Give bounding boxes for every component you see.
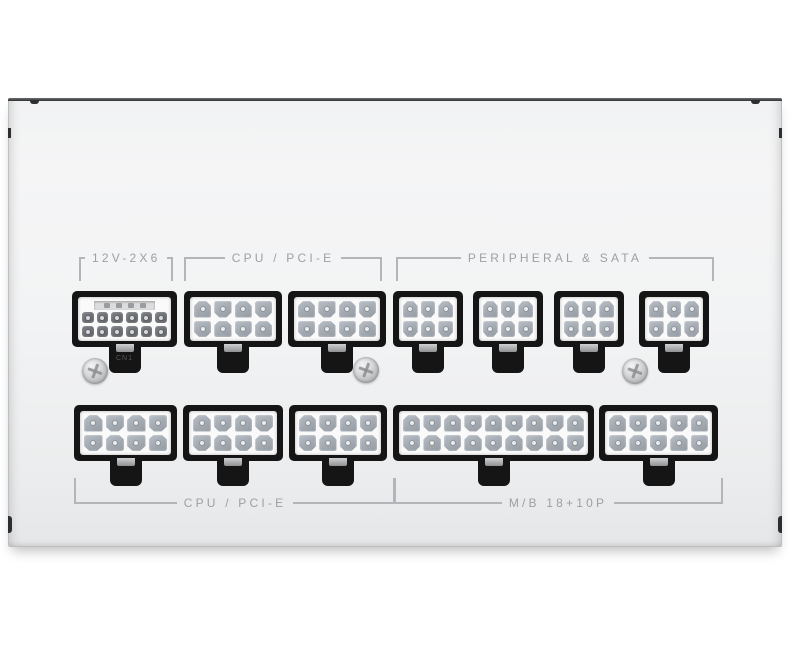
connector-housing	[605, 411, 712, 455]
connector-housing	[189, 411, 277, 455]
pin-cavity	[235, 321, 252, 338]
group-label-text: 12V-2X6	[92, 252, 160, 264]
pin-cavity	[526, 435, 543, 452]
tab-latch	[224, 458, 242, 466]
tab-latch	[665, 344, 683, 352]
sense-pin	[104, 303, 110, 308]
connector-housing	[80, 411, 171, 455]
pin-cavity	[609, 435, 626, 452]
pin-cavity	[667, 301, 682, 318]
pin-cavity	[298, 321, 315, 338]
pin-cavity	[299, 415, 316, 432]
pin-cavity	[340, 435, 357, 452]
connector-cpu-pcie-top-1	[184, 291, 282, 347]
pin-grid	[609, 415, 708, 451]
pin-cavity	[214, 321, 231, 338]
sense-pins	[94, 301, 155, 310]
pin-cavity	[444, 435, 461, 452]
group-label-text: M/B 18+10P	[509, 497, 607, 509]
pin-cavity	[505, 435, 522, 452]
pin-grid	[483, 301, 533, 337]
cable-tab	[478, 458, 510, 486]
pin-cavity	[214, 415, 232, 432]
pin-cavity	[423, 415, 440, 432]
pin-cavity	[193, 415, 211, 432]
pin-cavity	[501, 321, 516, 338]
cable-tab	[412, 344, 444, 373]
pin-cavity	[483, 301, 498, 318]
pin-cavity	[464, 435, 481, 452]
pin-cavity	[582, 301, 597, 318]
pin-cavity	[82, 326, 94, 337]
pin-cavity	[340, 415, 357, 432]
pin-cavity	[318, 321, 335, 338]
pin-cavity	[599, 321, 614, 338]
pin-cavity	[650, 415, 667, 432]
screw	[622, 358, 648, 384]
cable-tab	[217, 458, 249, 486]
cable-tab	[643, 458, 675, 486]
screw	[82, 358, 108, 384]
group-label-text: CPU / PCI-E	[232, 252, 335, 264]
connector-cpu-pcie-bottom-3	[289, 405, 387, 461]
tab-latch	[329, 458, 347, 466]
pin-cavity	[214, 435, 232, 452]
connector-peripheral-sata-1	[393, 291, 463, 347]
pin-cavity	[609, 415, 626, 432]
product-photo: 12V-2X6 CPU / PCI-E PERIPHERAL & SATA CP…	[0, 0, 791, 648]
tab-latch	[419, 344, 437, 352]
tab-latch	[650, 458, 668, 466]
pin-cavity	[649, 301, 664, 318]
cable-tab	[573, 344, 605, 373]
edge-tick-right	[779, 128, 782, 138]
pin-cavity	[82, 312, 94, 323]
pin-cavity	[360, 435, 377, 452]
pin-cavity	[141, 326, 153, 337]
pin-cavity	[423, 435, 440, 452]
pin-cavity	[155, 326, 167, 337]
pin-cavity	[599, 301, 614, 318]
connector-cpu-pcie-top-2	[288, 291, 386, 347]
pin-grid	[403, 415, 584, 451]
group-label-text: CPU / PCI-E	[184, 497, 287, 509]
tab-latch	[328, 344, 346, 352]
pin-cavity	[255, 415, 273, 432]
pin-cavity	[149, 435, 168, 452]
pin-cavity	[235, 301, 252, 318]
pin-cavity	[649, 321, 664, 338]
pin-cavity	[359, 321, 376, 338]
pin-cavity	[299, 435, 316, 452]
connector-housing	[78, 297, 171, 341]
pin-cavity	[298, 301, 315, 318]
pin-cavity	[464, 415, 481, 432]
pin-cavity	[567, 435, 584, 452]
pin-cavity	[194, 321, 211, 338]
pin-cavity	[670, 415, 687, 432]
cable-tab	[322, 458, 354, 486]
pin-cavity	[111, 326, 123, 337]
sense-pin	[116, 303, 122, 308]
connector-peripheral-sata-3	[554, 291, 624, 347]
connector-cpu-pcie-bottom-1	[74, 405, 177, 461]
pin-cavity	[97, 326, 109, 337]
cable-tab	[492, 344, 524, 373]
pin-cavity	[667, 321, 682, 338]
group-label-12v-2x6: 12V-2X6	[79, 257, 169, 281]
pin-cavity	[650, 435, 667, 452]
pin-cavity	[155, 312, 167, 323]
pin-cavity	[149, 415, 168, 432]
pin-cavity	[567, 415, 584, 432]
pin-cavity	[403, 301, 418, 318]
pin-cavity	[582, 321, 597, 338]
tab-label: CN1	[116, 355, 133, 362]
group-label-cpu-pcie-top: CPU / PCI-E	[184, 257, 382, 281]
pin-cavity	[127, 415, 146, 432]
pin-cavity	[684, 301, 699, 318]
pin-cavity	[403, 415, 420, 432]
pin-cavity	[670, 435, 687, 452]
pin-cavity	[546, 435, 563, 452]
pin-cavity	[106, 435, 125, 452]
connector-mb-10pin	[599, 405, 718, 461]
pin-cavity	[255, 301, 272, 318]
pin-cavity	[421, 321, 436, 338]
pin-cavity	[444, 415, 461, 432]
connector-housing	[295, 411, 381, 455]
pin-grid	[194, 301, 272, 337]
cable-tab	[658, 344, 690, 373]
edge-tick-left	[8, 128, 11, 138]
pin-cavity	[111, 312, 123, 323]
pin-cavity	[421, 301, 436, 318]
cable-tab: CN1	[109, 344, 141, 373]
edge-notch-top-right	[751, 100, 760, 104]
connector-housing	[190, 297, 276, 341]
connector-housing	[479, 297, 537, 341]
edge-notch-bottom-right	[778, 516, 782, 533]
pin-cavity	[319, 435, 336, 452]
pin-grid	[564, 301, 614, 337]
pin-cavity	[319, 415, 336, 432]
pin-cavity	[127, 435, 146, 452]
connector-housing	[399, 411, 588, 455]
pin-cavity	[564, 301, 579, 318]
pin-cavity	[214, 301, 231, 318]
pin-cavity	[518, 301, 533, 318]
pin-grid	[193, 415, 273, 451]
pin-cavity	[141, 312, 153, 323]
sense-pin	[128, 303, 134, 308]
connector-cpu-pcie-bottom-2	[183, 405, 283, 461]
pin-cavity	[84, 415, 103, 432]
pin-cavity	[485, 435, 502, 452]
sense-pin	[140, 303, 146, 308]
screw	[353, 357, 379, 383]
pin-cavity	[691, 415, 708, 432]
cable-tab	[321, 344, 353, 373]
psu-top-edge	[8, 98, 782, 101]
connector-peripheral-sata-4	[639, 291, 709, 347]
tab-latch	[499, 344, 517, 352]
pin-cavity	[564, 321, 579, 338]
pin-grid	[298, 301, 376, 337]
pin-cavity	[194, 301, 211, 318]
pin-grid	[84, 415, 167, 451]
connector-peripheral-sata-2	[473, 291, 543, 347]
pin-cavity	[84, 435, 103, 452]
connector-12v-2x6: CN1	[72, 291, 177, 347]
pin-grid	[82, 312, 167, 337]
pin-cavity	[546, 415, 563, 432]
pin-cavity	[360, 415, 377, 432]
pin-grid	[403, 301, 453, 337]
connector-housing	[399, 297, 457, 341]
pin-cavity	[438, 301, 453, 318]
pin-cavity	[193, 435, 211, 452]
pin-cavity	[483, 321, 498, 338]
tab-latch	[117, 458, 135, 466]
pin-cavity	[518, 321, 533, 338]
pin-cavity	[403, 321, 418, 338]
cable-tab	[110, 458, 142, 486]
pin-grid	[299, 415, 377, 451]
pin-cavity	[126, 326, 138, 337]
pin-cavity	[255, 435, 273, 452]
pin-cavity	[684, 321, 699, 338]
pin-cavity	[501, 301, 516, 318]
pin-cavity	[339, 301, 356, 318]
psu-body: 12V-2X6 CPU / PCI-E PERIPHERAL & SATA CP…	[8, 98, 782, 547]
connector-housing	[294, 297, 380, 341]
pin-cavity	[505, 415, 522, 432]
group-label-peripheral-sata: PERIPHERAL & SATA	[396, 257, 714, 281]
pin-cavity	[318, 301, 335, 318]
pin-cavity	[485, 415, 502, 432]
cable-tab	[217, 344, 249, 373]
tab-latch	[224, 344, 242, 352]
group-label-text: PERIPHERAL & SATA	[468, 252, 642, 264]
pin-cavity	[235, 415, 253, 432]
pin-cavity	[255, 321, 272, 338]
pin-cavity	[691, 435, 708, 452]
pin-cavity	[235, 435, 253, 452]
tab-latch	[580, 344, 598, 352]
connector-mb-18pin	[393, 405, 594, 461]
pin-grid	[649, 301, 699, 337]
pin-cavity	[97, 312, 109, 323]
tab-latch	[116, 344, 134, 352]
connector-housing	[645, 297, 703, 341]
pin-cavity	[126, 312, 138, 323]
pin-cavity	[403, 435, 420, 452]
edge-notch-top-left	[30, 100, 39, 104]
pin-cavity	[359, 301, 376, 318]
pin-cavity	[526, 415, 543, 432]
pin-cavity	[629, 415, 646, 432]
pin-cavity	[629, 435, 646, 452]
connector-housing	[560, 297, 618, 341]
edge-notch-bottom-left	[8, 516, 12, 533]
pin-cavity	[106, 415, 125, 432]
pin-cavity	[438, 321, 453, 338]
tab-latch	[485, 458, 503, 466]
pin-cavity	[339, 321, 356, 338]
